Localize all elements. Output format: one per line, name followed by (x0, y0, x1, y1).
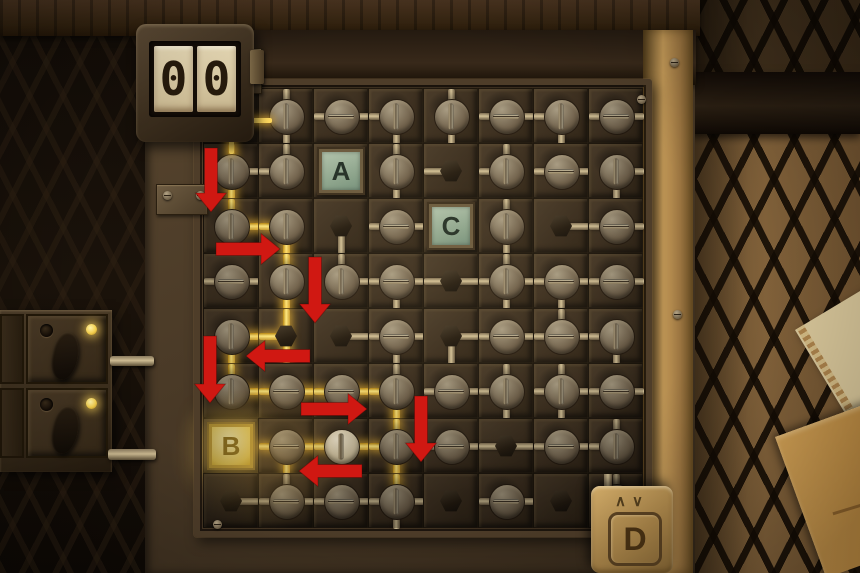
led-indicator-1 (86, 324, 97, 335)
screw-icon (673, 310, 682, 319)
led-indicator-2 (86, 398, 97, 409)
keyhole (40, 324, 53, 337)
counter-digit-right: 0 (197, 46, 236, 112)
panel-side-cell (0, 388, 24, 458)
screw-icon (213, 520, 222, 529)
lever-1[interactable] (47, 330, 82, 382)
dark-beam-right (688, 72, 860, 134)
counter-digit-left: 0 (154, 46, 193, 112)
tile-d-letter: D (608, 512, 662, 566)
keyhole (40, 398, 53, 411)
up-down-carets-icon: ∧∨ (591, 492, 673, 510)
lever-compartment-2 (26, 388, 108, 458)
panel-rod (108, 449, 156, 460)
panel-side-cell (0, 314, 24, 384)
panel-rod (110, 356, 154, 366)
counter-display: 0 0 (149, 41, 241, 117)
lever-compartment-1 (26, 314, 108, 384)
lever-2[interactable] (47, 404, 82, 456)
screw-icon (670, 58, 679, 67)
lever-panel (0, 310, 112, 472)
grid-frame (194, 79, 652, 537)
screw-icon (196, 191, 205, 200)
screw-icon (163, 191, 172, 200)
counter-mount-bracket (250, 50, 264, 84)
tile-slot-d[interactable]: ∧∨ D (591, 486, 673, 573)
game-screen: ACB 0 0 ∧∨ D (0, 0, 860, 573)
turn-counter-box: 0 0 (136, 24, 254, 142)
screw-icon (637, 95, 646, 104)
